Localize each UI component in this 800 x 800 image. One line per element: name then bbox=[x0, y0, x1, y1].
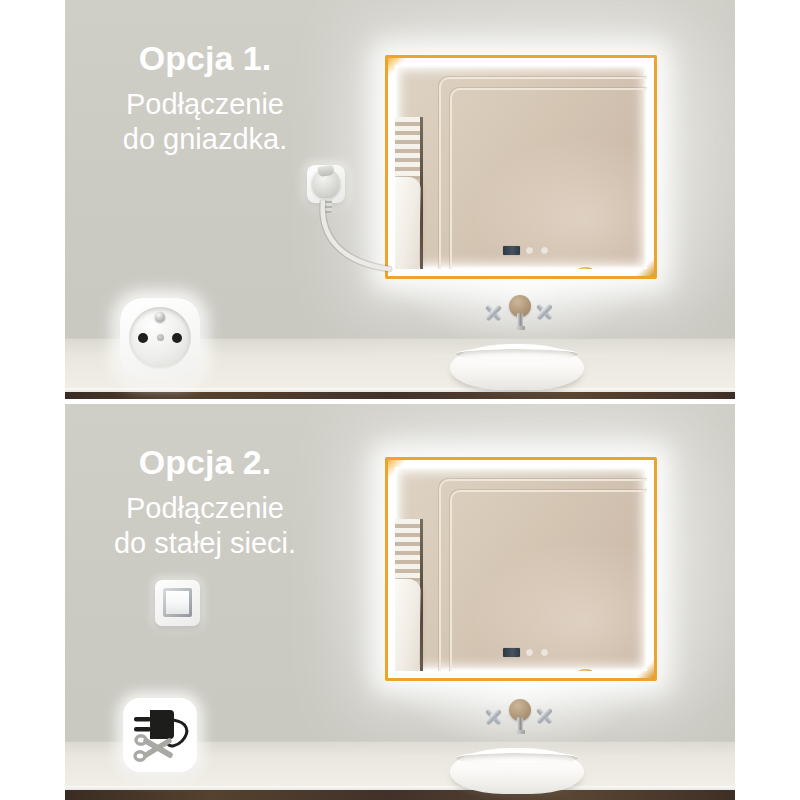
plug-body bbox=[150, 710, 174, 739]
faucet-cross-handle bbox=[535, 302, 554, 321]
wall-molding-reflection bbox=[450, 490, 647, 671]
ground-pin bbox=[155, 312, 165, 322]
mirror-glass bbox=[395, 65, 647, 269]
caption-option-2: Opcja 2. Podłączenie do stałej sieci. bbox=[65, 442, 345, 561]
handle-hub bbox=[490, 713, 497, 720]
wall-socket-with-plug bbox=[307, 165, 345, 203]
panel-option-2: Opcja 2. Podłączenie do stałej sieci. bbox=[65, 404, 735, 800]
mirror-touch-button bbox=[526, 649, 533, 656]
wall-molding-reflection bbox=[450, 88, 647, 269]
socket-recess bbox=[129, 307, 191, 369]
handle-hub bbox=[541, 308, 548, 315]
cut-plug-graphic bbox=[123, 698, 197, 772]
option-subtitle-line1: Podłączenie bbox=[65, 491, 345, 526]
caption-option-1: Opcja 1. Podłączenie do gniazdka. bbox=[65, 38, 345, 157]
wood-cabinet-edge bbox=[65, 392, 735, 399]
option-subtitle-line1: Podłączenie bbox=[65, 87, 345, 122]
handle-hub bbox=[541, 712, 548, 719]
towel-radiator-reflection bbox=[395, 519, 421, 581]
wall-faucet bbox=[480, 295, 600, 335]
vessel-sink bbox=[450, 748, 584, 794]
mirror-touch-button bbox=[541, 247, 548, 254]
led-mirror bbox=[385, 55, 657, 279]
option-title: Opcja 1. bbox=[65, 38, 345, 78]
socket-hole bbox=[172, 333, 182, 343]
power-cable bbox=[305, 200, 405, 278]
mirror-touch-button bbox=[541, 649, 548, 656]
light-switch-icon bbox=[155, 580, 200, 626]
faucet-spout-tip bbox=[516, 326, 525, 330]
switch-rocker bbox=[166, 591, 189, 614]
faucet-cross-handle bbox=[484, 303, 503, 322]
led-mirror bbox=[385, 457, 657, 681]
vessel-sink bbox=[450, 344, 584, 390]
scissors-icon bbox=[135, 736, 170, 760]
mirror-clock-display bbox=[503, 246, 520, 255]
option-title: Opcja 2. bbox=[65, 442, 345, 482]
type-e-socket-icon bbox=[120, 298, 200, 378]
socket-screw bbox=[157, 334, 164, 341]
mirror-clock-display bbox=[503, 648, 520, 657]
switch-frame bbox=[163, 588, 192, 617]
towel-radiator-reflection bbox=[395, 117, 421, 179]
wall-faucet bbox=[480, 699, 600, 739]
option-subtitle-line2: do gniazdka. bbox=[65, 122, 345, 157]
faucet-spout-tip bbox=[516, 730, 525, 734]
panel-option-1: Opcja 1. Podłączenie do gniazdka. bbox=[65, 0, 735, 399]
option-subtitle-line2: do stałej sieci. bbox=[65, 526, 345, 561]
plug-prong bbox=[134, 727, 151, 732]
mirror-touch-button bbox=[526, 247, 533, 254]
faucet-cross-handle bbox=[535, 706, 554, 725]
socket-hole bbox=[138, 333, 148, 343]
faucet-cross-handle bbox=[484, 707, 503, 726]
mirror-glass bbox=[395, 467, 647, 671]
brass-reflection bbox=[577, 669, 594, 671]
handle-hub bbox=[490, 309, 497, 316]
cut-plug-icon bbox=[123, 698, 197, 772]
towel-reflection bbox=[395, 579, 421, 671]
plug-prong bbox=[134, 717, 151, 722]
brass-reflection bbox=[577, 267, 594, 269]
wood-cabinet-edge bbox=[65, 790, 735, 800]
